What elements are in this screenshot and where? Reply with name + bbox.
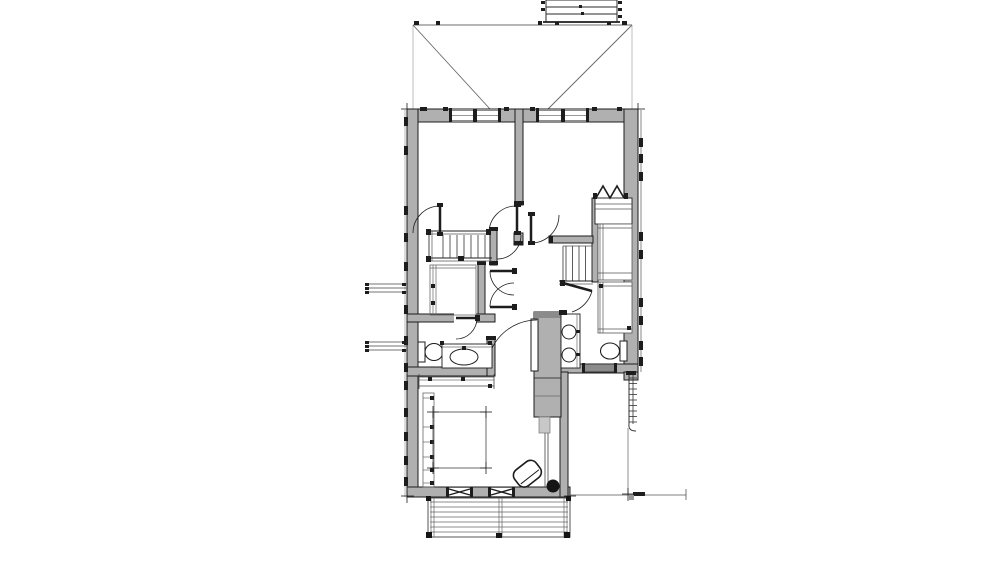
window-box-tick	[365, 345, 369, 348]
siding-tick-right	[639, 341, 643, 350]
window-jamb	[449, 108, 452, 122]
wall-end-cap	[489, 261, 498, 265]
door-cap	[514, 231, 521, 235]
wall-joint-tick	[420, 107, 427, 111]
stair-cap	[426, 256, 431, 262]
door-hinge	[512, 268, 517, 274]
fixture-tick	[559, 310, 567, 315]
bed-outline	[433, 412, 486, 468]
terrace-corner-pad	[629, 495, 634, 500]
door-hinge	[512, 304, 517, 310]
window-sill-dark	[584, 364, 615, 372]
bathroom-left	[418, 341, 492, 368]
window-jamb	[498, 108, 501, 122]
toilet-bowl	[425, 344, 443, 361]
floor-plan-page	[0, 0, 1000, 563]
roof-hip-left	[413, 25, 490, 109]
closet-tick	[431, 301, 435, 305]
dresser-tick	[430, 396, 434, 400]
wall-joint-tick	[530, 107, 535, 111]
door-cap	[514, 203, 521, 207]
hanger-zigzag	[596, 186, 624, 198]
wall-bedroom-divider	[515, 109, 523, 205]
window-box-tick	[402, 291, 406, 294]
faucet	[462, 346, 466, 350]
siding-tick-left	[404, 381, 408, 390]
hanger-end	[624, 193, 628, 199]
rod-tick	[428, 377, 432, 381]
siding-tick-right	[639, 316, 643, 325]
wall-end-cap	[486, 336, 496, 340]
deck-post	[564, 532, 570, 538]
window-mullion	[473, 109, 477, 122]
siding-tick-left	[404, 262, 408, 271]
window-box-tick	[365, 349, 369, 352]
wall-end-cap	[477, 261, 486, 265]
roof-hip-right	[548, 25, 632, 109]
wall-stair-right	[490, 228, 497, 265]
rod-tick	[461, 377, 465, 381]
deck-bottom	[426, 496, 571, 538]
railing-hook	[629, 424, 636, 431]
window-box-tick	[365, 283, 369, 286]
deck-tick	[618, 15, 622, 18]
deck-outline	[546, 0, 617, 22]
closet-right-outline	[595, 198, 632, 224]
window-mullion	[561, 109, 565, 122]
deck-tick	[579, 5, 582, 8]
top-deck	[541, 0, 622, 22]
siding-tick-left	[404, 456, 408, 465]
site-lines	[570, 371, 686, 501]
wall-joint-tick	[617, 107, 622, 111]
wall-stair-right-top	[549, 236, 593, 243]
siding-tick-left	[404, 408, 408, 417]
window-box-tick	[402, 341, 406, 344]
deck-tick	[541, 8, 545, 11]
window-jamb	[470, 487, 473, 497]
fixture-tick	[488, 341, 492, 345]
door-cap	[528, 241, 535, 245]
siding-tick-left	[404, 233, 408, 242]
deck-post	[426, 496, 431, 501]
wall-joint-tick	[443, 107, 448, 111]
deck-post	[566, 496, 571, 501]
toilet-tank	[418, 342, 425, 362]
dresser-tick	[430, 481, 434, 485]
wall-closet-right	[478, 262, 485, 320]
wall-left	[407, 109, 418, 497]
window-box-tick	[365, 287, 369, 290]
deck-post	[426, 532, 432, 538]
wall-end-cap	[549, 236, 553, 243]
wall-joint-tick	[504, 107, 509, 111]
window-box-tick	[365, 341, 369, 344]
roof-tick	[414, 21, 419, 25]
roof-tick	[436, 21, 440, 25]
linen-tick	[627, 326, 631, 330]
floor-plan-canvas	[0, 0, 1000, 563]
siding-tick-right	[639, 154, 643, 163]
door-cap	[437, 203, 443, 207]
door-hinge	[475, 315, 480, 321]
linen-tick	[599, 284, 603, 288]
faucet	[576, 330, 580, 333]
window-box-tick	[365, 291, 369, 294]
stove	[547, 480, 560, 493]
closet-tick	[431, 284, 435, 288]
deck-post	[496, 533, 502, 538]
siding-tick-right	[639, 232, 643, 241]
toilet-bowl	[601, 343, 620, 359]
chair	[511, 458, 545, 490]
faucet	[576, 353, 580, 356]
deck-tick	[618, 1, 622, 4]
siding-tick-right	[639, 138, 643, 147]
window-jamb	[446, 487, 449, 497]
left-window-boxes	[365, 283, 407, 352]
door-cap	[437, 232, 443, 236]
siding-tick-left	[404, 305, 408, 314]
roof-tick	[622, 21, 627, 25]
railing-cap	[626, 371, 636, 375]
fixture-tick	[440, 341, 444, 345]
door-hinge	[560, 280, 565, 286]
roof-plan	[413, 21, 632, 109]
window-box-tick	[402, 283, 406, 286]
wall-joint-tick	[592, 107, 597, 111]
window-jamb	[586, 108, 589, 122]
shaft-extension	[539, 417, 550, 433]
window-jamb	[488, 487, 491, 497]
siding-tick-left	[404, 117, 408, 126]
door-cap	[528, 212, 535, 216]
toilet-tank	[620, 341, 627, 361]
siding-tick-left	[404, 363, 408, 372]
closet-left-outline	[430, 265, 476, 315]
shaft-cap	[534, 312, 561, 318]
door-swing-arc	[572, 291, 592, 312]
siding-tick-left	[404, 477, 408, 486]
sink-basin	[562, 325, 576, 339]
hanger-end	[593, 193, 597, 199]
stairs-right	[559, 246, 593, 284]
stair-cap	[458, 256, 464, 261]
roof-tick	[538, 21, 542, 25]
window-jamb	[582, 363, 585, 373]
siding-tick-right	[639, 298, 643, 307]
deck-tick	[581, 12, 584, 15]
rod-tick	[488, 384, 492, 388]
stair-cap	[426, 229, 431, 235]
siding-tick-left	[404, 432, 408, 441]
siding-tick-left	[404, 206, 408, 215]
window-jamb	[536, 108, 539, 122]
siding-tick-left	[404, 146, 408, 155]
basin-oval	[450, 349, 478, 365]
stair-cap	[486, 229, 491, 235]
deck-tick	[541, 1, 545, 4]
sink-basin	[562, 348, 576, 362]
deck-tick	[618, 8, 622, 11]
window-jamb	[614, 363, 617, 373]
window-jamb	[512, 487, 515, 497]
wall-end-cap	[514, 241, 523, 245]
siding-tick-right	[639, 172, 643, 181]
window-box-tick	[402, 349, 406, 352]
door-leaf-open	[531, 319, 538, 371]
siding-tick-right	[639, 250, 643, 259]
siding-tick-right	[639, 357, 643, 366]
stairs-left	[426, 229, 492, 262]
